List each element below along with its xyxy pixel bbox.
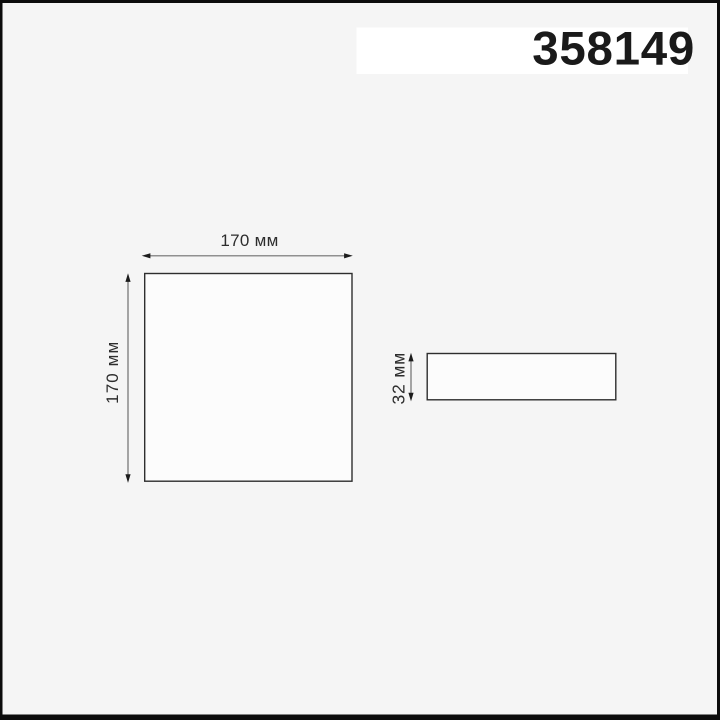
svg-text:170 мм: 170 мм xyxy=(220,231,278,250)
svg-text:32 мм: 32 мм xyxy=(388,352,408,404)
svg-text:358149: 358149 xyxy=(532,22,695,75)
svg-text:170 мм: 170 мм xyxy=(103,341,122,404)
